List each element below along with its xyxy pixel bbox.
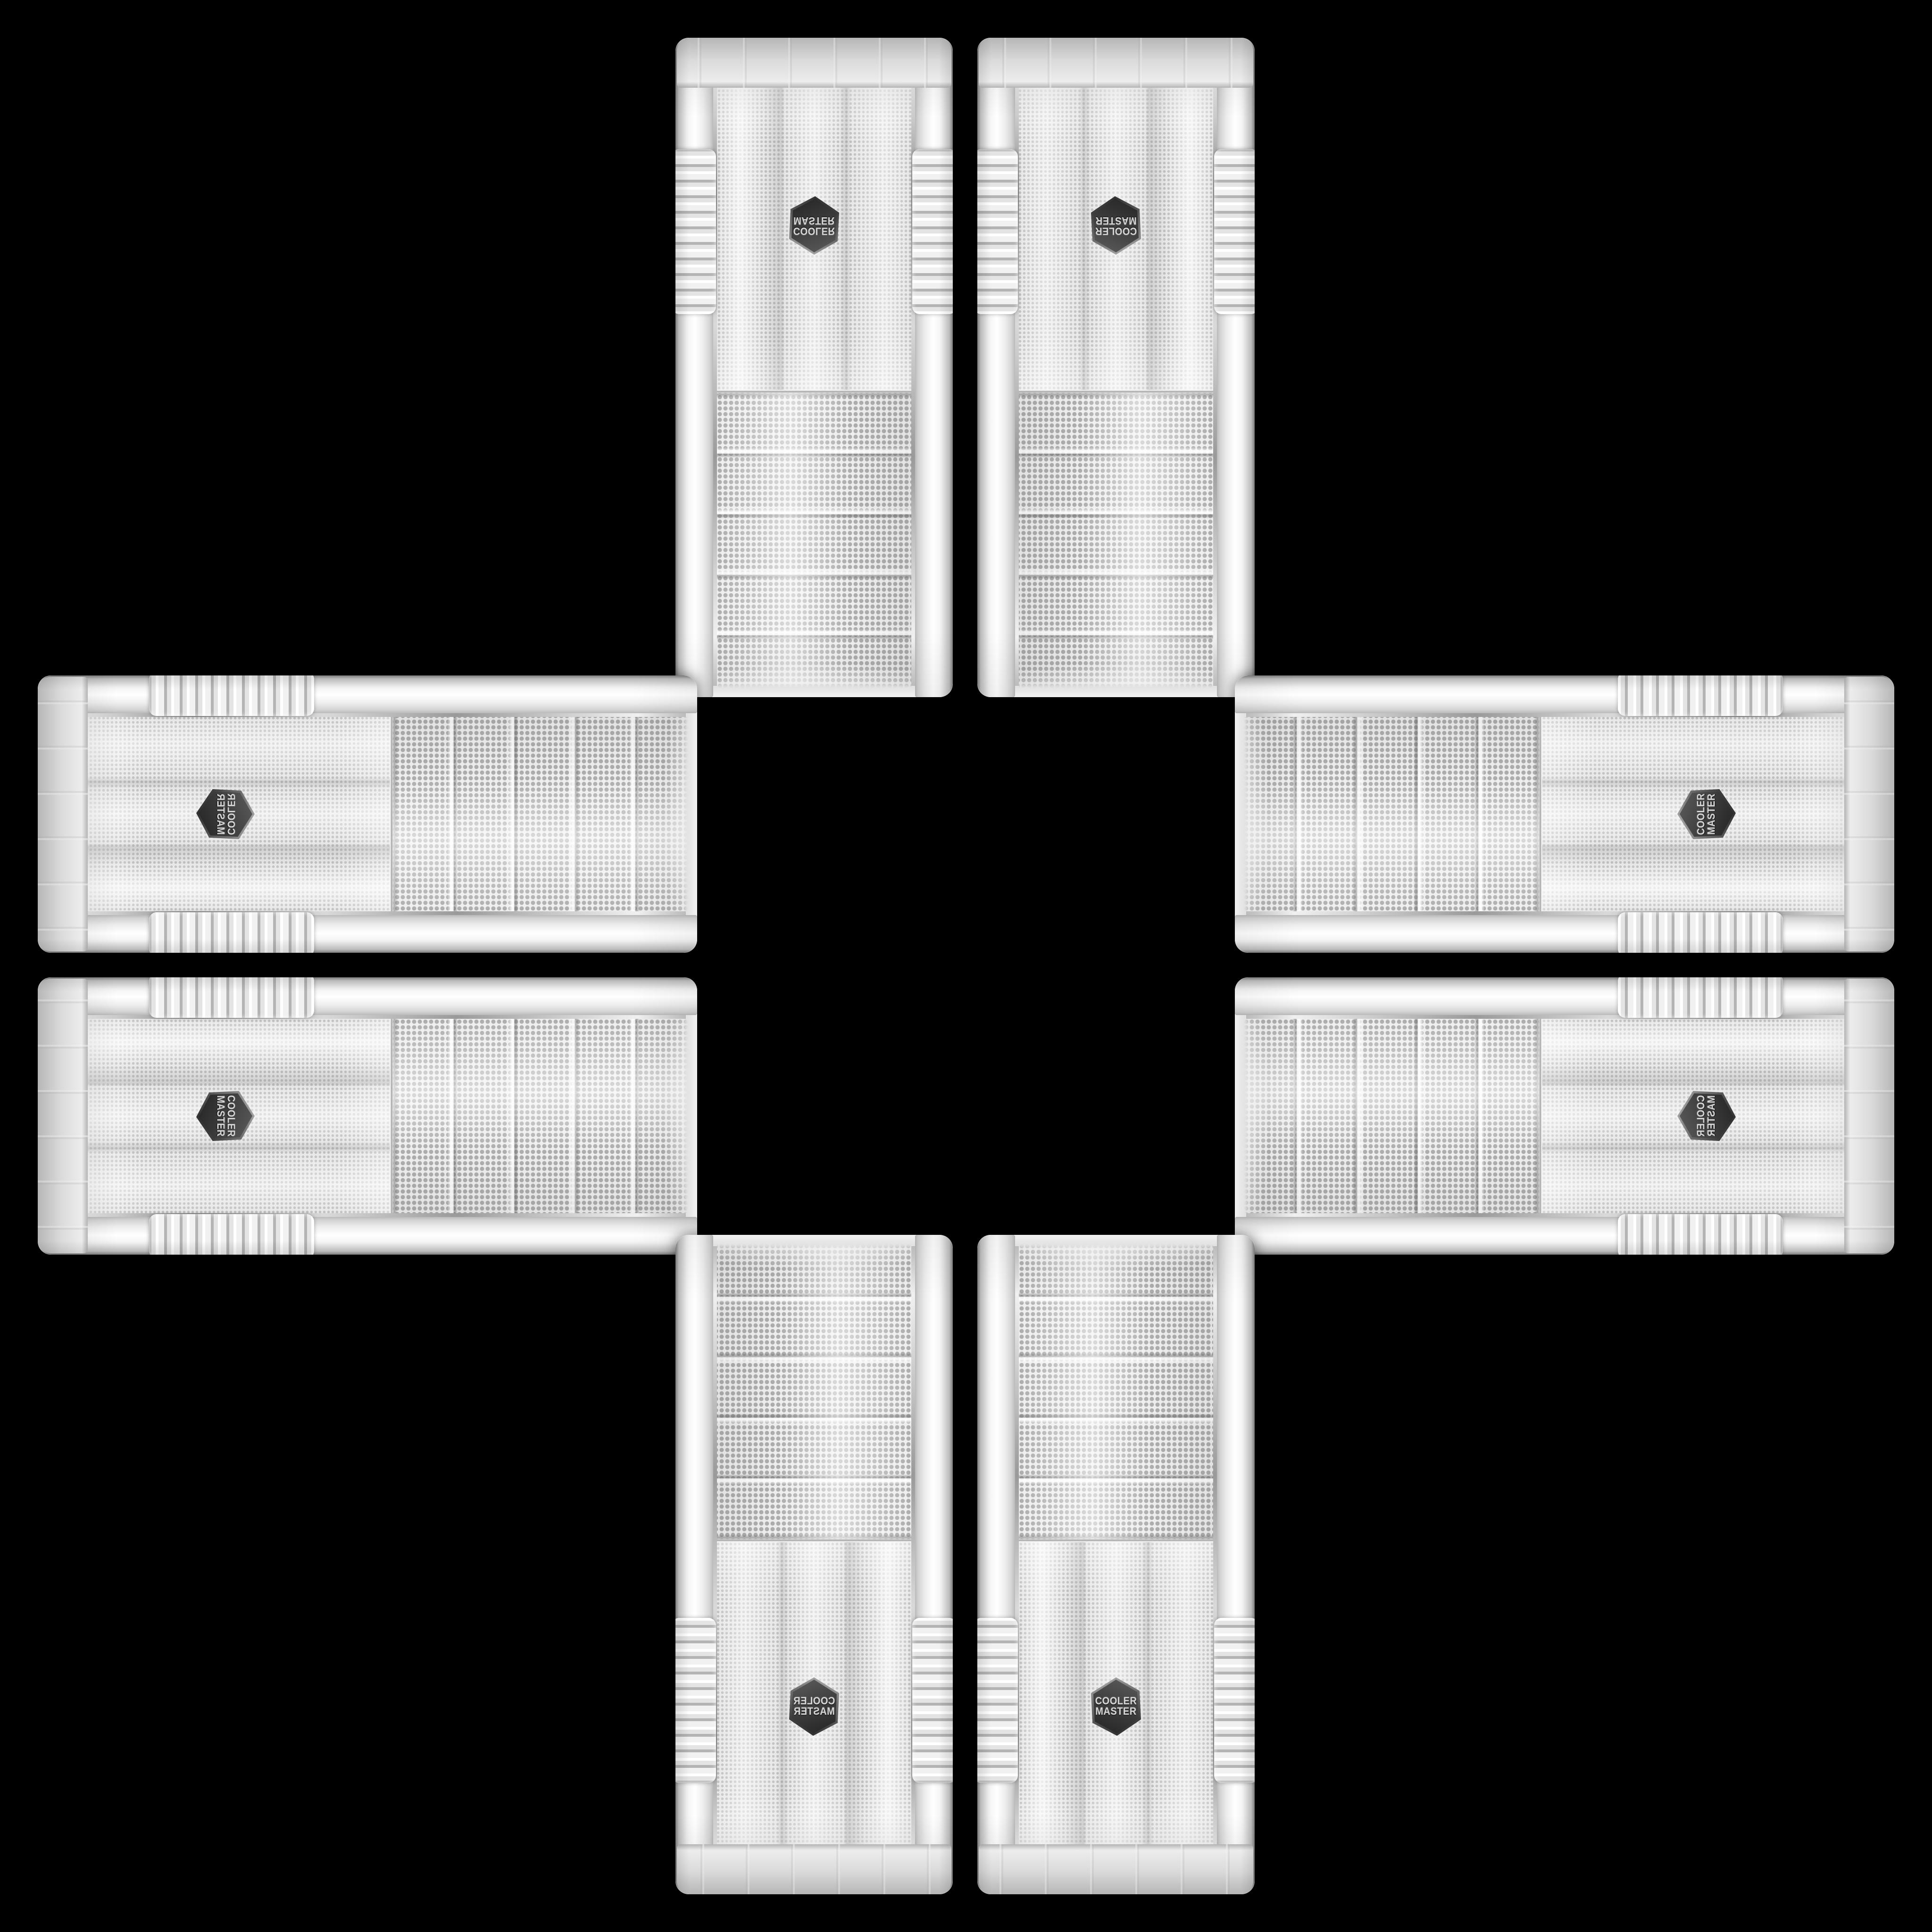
top-cap — [979, 683, 1253, 697]
top-cap — [1235, 979, 1249, 1253]
drive-bay-mesh — [1238, 1019, 1541, 1213]
grip-ribs-left — [977, 1618, 1018, 1783]
drive-bay-mesh — [717, 1238, 911, 1541]
grip-ribs-left — [1618, 977, 1783, 1018]
top-cap — [979, 1235, 1253, 1249]
drive-bay-mesh — [391, 1019, 694, 1213]
badge-text-line2: MASTER — [1095, 1706, 1136, 1717]
case-front-shell: COOLER MASTER — [1235, 675, 1894, 953]
panel-seam — [390, 1018, 392, 1214]
side-rail-right — [1217, 1235, 1255, 1894]
bottom-cap — [1844, 979, 1894, 1253]
grip-ribs-left — [675, 149, 716, 314]
badge-text-line2: MASTER — [793, 1706, 834, 1717]
panel-seam — [1540, 1018, 1542, 1214]
case-front-shell: COOLER MASTER — [1235, 977, 1894, 1255]
badge-text-line2: MASTER — [1706, 793, 1717, 834]
bottom-cap — [38, 677, 88, 951]
badge-face: COOLER MASTER — [1093, 199, 1139, 252]
panel-seam — [1540, 716, 1542, 912]
case-front-shell: COOLER MASTER — [675, 1235, 953, 1894]
drive-bay-mesh — [391, 717, 694, 911]
panel-seam — [390, 716, 392, 912]
case-panel-bottom-right: COOLER MASTER — [977, 1235, 1255, 1894]
grip-ribs-left — [912, 1618, 953, 1783]
badge-text-line2: MASTER — [215, 1095, 226, 1136]
drive-bay-mesh — [1019, 1238, 1213, 1541]
top-cap — [677, 683, 951, 697]
grip-ribs-right — [675, 1618, 716, 1783]
panel-seam — [1018, 390, 1214, 392]
grip-ribs-left — [1214, 149, 1255, 314]
case-panel-right-bottom: COOLER MASTER — [1235, 977, 1894, 1255]
side-rail-right — [38, 675, 697, 713]
side-rail-left — [1235, 915, 1894, 953]
drive-bay-mesh — [1019, 391, 1213, 694]
panel-seam — [716, 1540, 912, 1542]
top-cap — [683, 677, 697, 951]
side-rail-left — [38, 977, 697, 1015]
case-front-shell: COOLER MASTER — [38, 977, 697, 1255]
side-rail-left — [1217, 38, 1255, 697]
case-panel-left-bottom: COOLER MASTER — [38, 977, 697, 1255]
grip-ribs-left — [149, 977, 314, 1018]
badge-face: COOLER MASTER — [791, 1680, 837, 1733]
badge-face: COOLER MASTER — [1680, 1093, 1733, 1139]
grip-ribs-right — [912, 149, 953, 314]
panel-seam — [1018, 1540, 1214, 1542]
grip-ribs-right — [977, 149, 1018, 314]
side-rail-right — [977, 38, 1015, 697]
drive-bay-mesh — [717, 391, 911, 694]
side-rail-left — [977, 1235, 1015, 1894]
top-cap — [677, 1235, 951, 1249]
case-front-shell: COOLER MASTER — [38, 675, 697, 953]
case-front-shell: COOLER MASTER — [977, 38, 1255, 697]
grip-ribs-left — [1618, 912, 1783, 953]
bottom-cap — [677, 1844, 951, 1894]
badge-face: COOLER MASTER — [199, 1093, 252, 1139]
badge-text-line1: COOLER — [793, 225, 835, 236]
bottom-cap — [979, 38, 1253, 88]
case-panel-left-top: COOLER MASTER — [38, 675, 697, 953]
badge-text-line1: COOLER — [1095, 225, 1137, 236]
panel-seam — [716, 390, 912, 392]
badge-text-line2: MASTER — [1095, 215, 1136, 226]
top-cap — [683, 979, 697, 1253]
bottom-cap — [979, 1844, 1253, 1894]
grip-ribs-right — [149, 1214, 314, 1255]
case-front-shell: COOLER MASTER — [977, 1235, 1255, 1894]
grip-ribs-right — [149, 675, 314, 716]
side-rail-left — [675, 38, 713, 697]
bottom-cap — [677, 38, 951, 88]
badge-face: COOLER MASTER — [1093, 1680, 1139, 1733]
side-rail-right — [1235, 1217, 1894, 1255]
badge-text-line1: COOLER — [225, 1095, 236, 1137]
grip-ribs-left — [149, 912, 314, 953]
grip-ribs-right — [1214, 1618, 1255, 1783]
badge-face: COOLER MASTER — [199, 791, 252, 837]
side-rail-right — [675, 1235, 713, 1894]
case-front-shell: COOLER MASTER — [675, 38, 953, 697]
side-rail-left — [38, 915, 697, 953]
side-rail-right — [38, 1217, 697, 1255]
grip-ribs-right — [1618, 675, 1783, 716]
drive-bay-mesh — [1238, 717, 1541, 911]
badge-text-line1: COOLER — [225, 793, 236, 835]
case-panel-right-top: COOLER MASTER — [1235, 675, 1894, 953]
case-panel-top-right: COOLER MASTER — [977, 38, 1255, 697]
badge-text-line1: COOLER — [1696, 1095, 1707, 1137]
side-rail-left — [1235, 977, 1894, 1015]
side-rail-right — [1235, 675, 1894, 713]
bottom-cap — [1844, 677, 1894, 951]
case-panel-bottom-left: COOLER MASTER — [675, 1235, 953, 1894]
grip-ribs-right — [1618, 1214, 1783, 1255]
badge-face: COOLER MASTER — [1680, 791, 1733, 837]
badge-text-line1: COOLER — [793, 1696, 835, 1707]
side-rail-right — [915, 38, 953, 697]
badge-text-line1: COOLER — [1095, 1696, 1137, 1707]
collage-background: COOLER MASTER COOLER MASTER — [0, 0, 1932, 1932]
badge-text-line2: MASTER — [793, 215, 834, 226]
side-rail-left — [915, 1235, 953, 1894]
badge-text-line1: COOLER — [1696, 793, 1707, 835]
badge-text-line2: MASTER — [1706, 1095, 1717, 1136]
bottom-cap — [38, 979, 88, 1253]
badge-text-line2: MASTER — [215, 793, 226, 834]
top-cap — [1235, 677, 1249, 951]
case-panel-top-left: COOLER MASTER — [675, 38, 953, 697]
badge-face: COOLER MASTER — [791, 199, 837, 252]
